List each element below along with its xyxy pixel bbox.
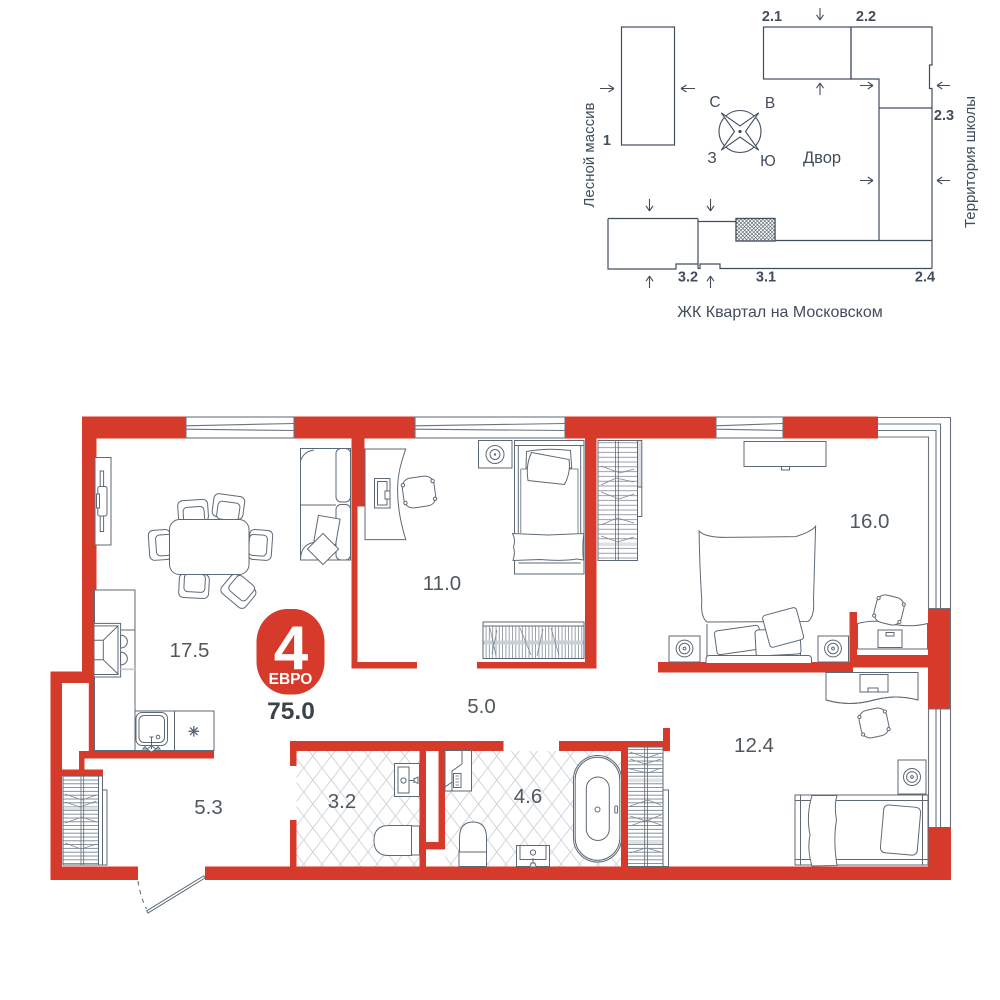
svg-text:С: С [709, 94, 720, 111]
svg-text:11.0: 11.0 [423, 572, 461, 595]
svg-text:17.5: 17.5 [170, 639, 210, 662]
svg-text:3.2: 3.2 [678, 270, 698, 286]
svg-text:75.0: 75.0 [267, 698, 315, 725]
svg-text:ЖК Квартал на Московском: ЖК Квартал на Московском [677, 304, 883, 321]
svg-text:16.0: 16.0 [850, 510, 890, 533]
svg-text:ЕВРО: ЕВРО [269, 671, 313, 688]
svg-text:3.1: 3.1 [756, 270, 776, 286]
svg-text:5.3: 5.3 [194, 796, 223, 819]
svg-text:2.2: 2.2 [856, 9, 876, 25]
svg-text:З: З [707, 150, 716, 167]
svg-text:12.4: 12.4 [734, 734, 774, 757]
svg-text:2.3: 2.3 [934, 108, 954, 124]
svg-text:2.4: 2.4 [915, 270, 935, 286]
svg-text:Двор: Двор [803, 149, 841, 167]
svg-text:Лесной массив: Лесной массив [581, 103, 598, 208]
svg-text:5.0: 5.0 [467, 695, 496, 718]
svg-text:2.1: 2.1 [762, 9, 782, 25]
svg-text:Ю: Ю [760, 153, 776, 170]
svg-text:4.6: 4.6 [514, 785, 543, 808]
svg-text:3.2: 3.2 [328, 790, 357, 813]
svg-text:В: В [765, 95, 775, 112]
svg-text:Территория школы: Территория школы [962, 96, 979, 228]
svg-text:1: 1 [603, 133, 611, 149]
